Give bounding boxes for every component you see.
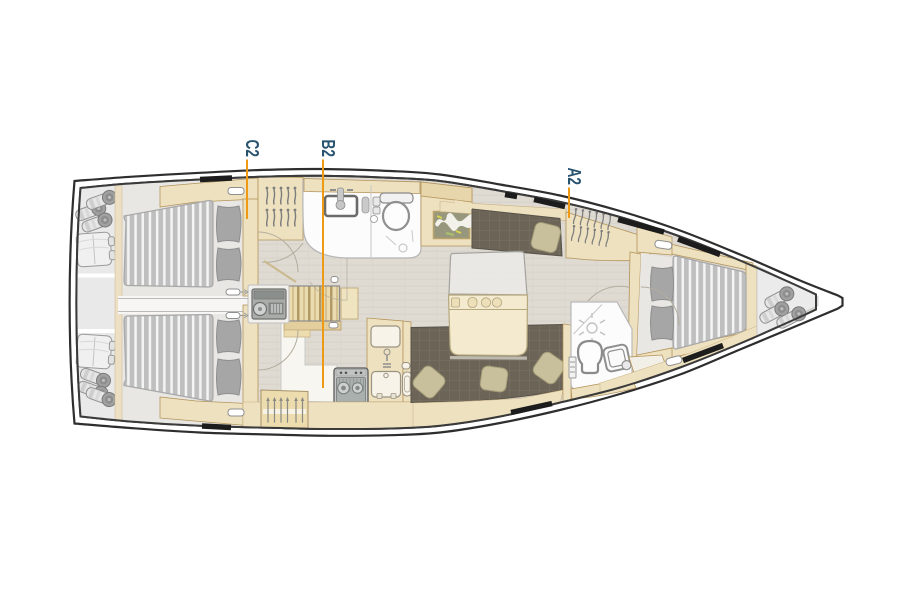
- svg-text:A2: A2: [564, 168, 584, 186]
- svg-text:C2: C2: [242, 140, 262, 158]
- svg-text:B2: B2: [318, 140, 338, 158]
